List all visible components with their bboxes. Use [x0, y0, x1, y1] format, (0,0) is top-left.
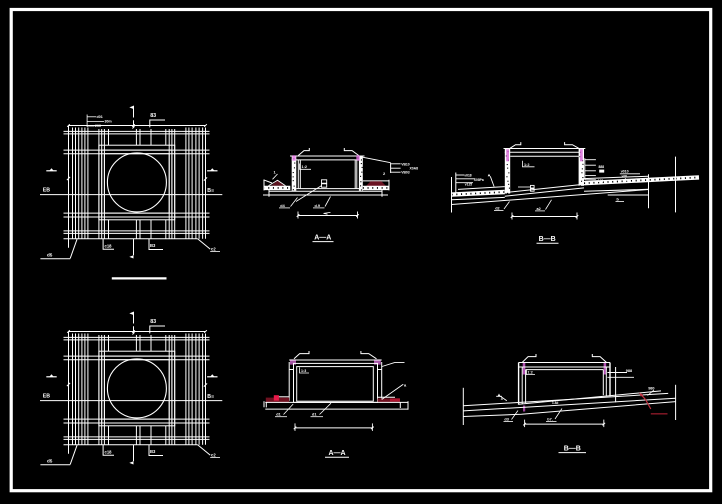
svg-text:1.4d: 1.4d — [552, 401, 558, 405]
svg-text:1:2: 1:2 — [302, 165, 308, 169]
svg-text:B3: B3 — [150, 243, 156, 248]
svg-text:d1: d1 — [276, 413, 280, 417]
svg-text:A—A: A—A — [328, 450, 345, 457]
svg-text:2: 2 — [383, 171, 386, 176]
svg-text:d3: d3 — [504, 417, 508, 421]
svg-text:1:2: 1:2 — [524, 163, 530, 167]
svg-text:d.9: d.9 — [315, 204, 321, 208]
svg-text:1:3: 1:3 — [301, 369, 306, 373]
svg-text:d1: d1 — [312, 413, 316, 417]
svg-text:x08: x08 — [621, 175, 627, 179]
svg-text:VB03: VB03 — [401, 171, 410, 175]
svg-text:c18: c18 — [105, 244, 113, 249]
svg-text:d5: d5 — [47, 252, 53, 257]
svg-text:1:2: 1:2 — [528, 371, 533, 375]
svg-text:v010: v010 — [621, 169, 629, 173]
svg-text:v125: v125 — [465, 183, 473, 187]
svg-text:4: 4 — [501, 397, 503, 401]
svg-text:B≡: B≡ — [207, 394, 214, 400]
svg-text:d5: d5 — [47, 458, 53, 463]
svg-text:b7.: b7. — [547, 417, 553, 421]
svg-text:c2: c2 — [211, 247, 216, 252]
svg-text:a2: a2 — [537, 207, 541, 211]
svg-text:EB: EB — [43, 394, 50, 400]
svg-text:1: 1 — [274, 169, 277, 174]
svg-text:980: 980 — [648, 386, 654, 390]
svg-text:d01: d01 — [97, 115, 103, 119]
svg-text:30m: 30m — [105, 120, 112, 124]
svg-text:B≡: B≡ — [207, 188, 214, 194]
svg-text:c18: c18 — [105, 450, 113, 455]
svg-text:888: 888 — [599, 165, 605, 169]
svg-text:v128: v128 — [596, 179, 604, 183]
svg-text:83: 83 — [150, 319, 156, 325]
svg-text:b: b — [617, 197, 620, 201]
svg-text:a: a — [404, 383, 407, 388]
svg-text:VB10: VB10 — [401, 162, 410, 166]
svg-text:v018: v018 — [464, 174, 472, 178]
svg-text:d4: d4 — [280, 204, 285, 208]
svg-text:d2: d2 — [495, 207, 499, 211]
svg-text:A—A: A—A — [314, 235, 331, 242]
svg-text:200: 200 — [95, 124, 101, 128]
svg-text:83: 83 — [150, 113, 156, 119]
svg-text:B—B: B—B — [564, 445, 581, 452]
svg-text:B—B: B—B — [539, 236, 556, 243]
svg-text:X08Pa: X08Pa — [474, 178, 484, 182]
svg-text:c2: c2 — [211, 453, 216, 458]
svg-text:EB: EB — [43, 188, 50, 194]
svg-text:X0A8: X0A8 — [410, 167, 419, 171]
svg-text:B3: B3 — [150, 449, 156, 454]
